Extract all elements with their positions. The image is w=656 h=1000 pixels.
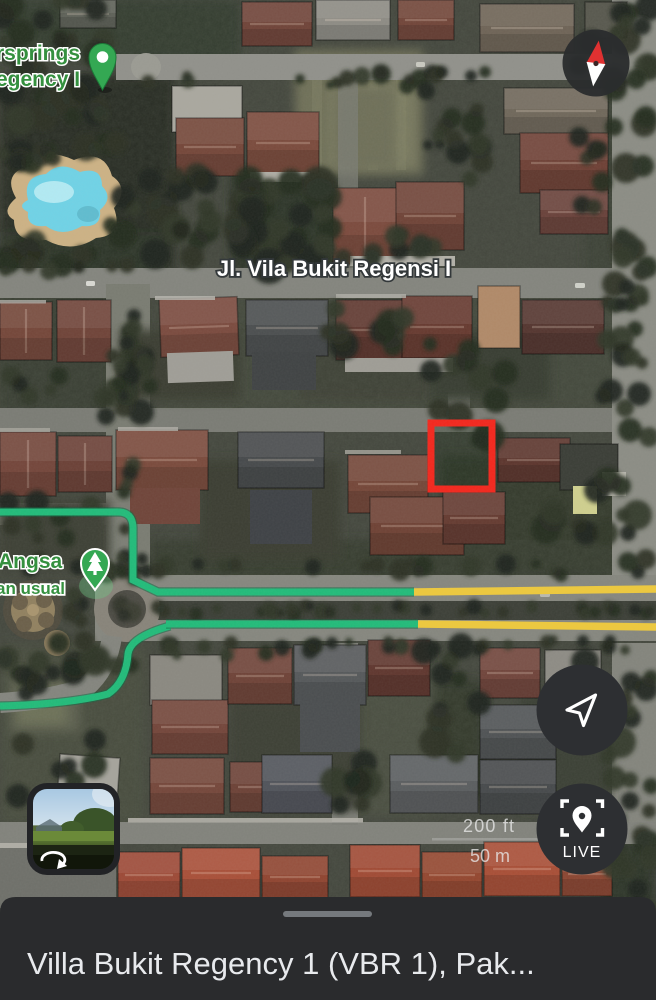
svg-text:50 m: 50 m	[470, 846, 510, 866]
svg-text:Villa Bukit Regency 1 (VBR 1),: Villa Bukit Regency 1 (VBR 1), Pak...	[27, 946, 535, 981]
svg-text:LIVE: LIVE	[563, 844, 602, 861]
svg-text:Angsa: Angsa	[0, 550, 63, 573]
svg-text:rsprings: rsprings	[0, 42, 80, 65]
svg-text:Jl. Vila Bukit Regensi I: Jl. Vila Bukit Regensi I	[217, 256, 451, 281]
svg-text:an usual: an usual	[0, 579, 65, 598]
svg-text:egency I: egency I	[0, 68, 80, 91]
svg-text:200 ft: 200 ft	[463, 816, 515, 836]
